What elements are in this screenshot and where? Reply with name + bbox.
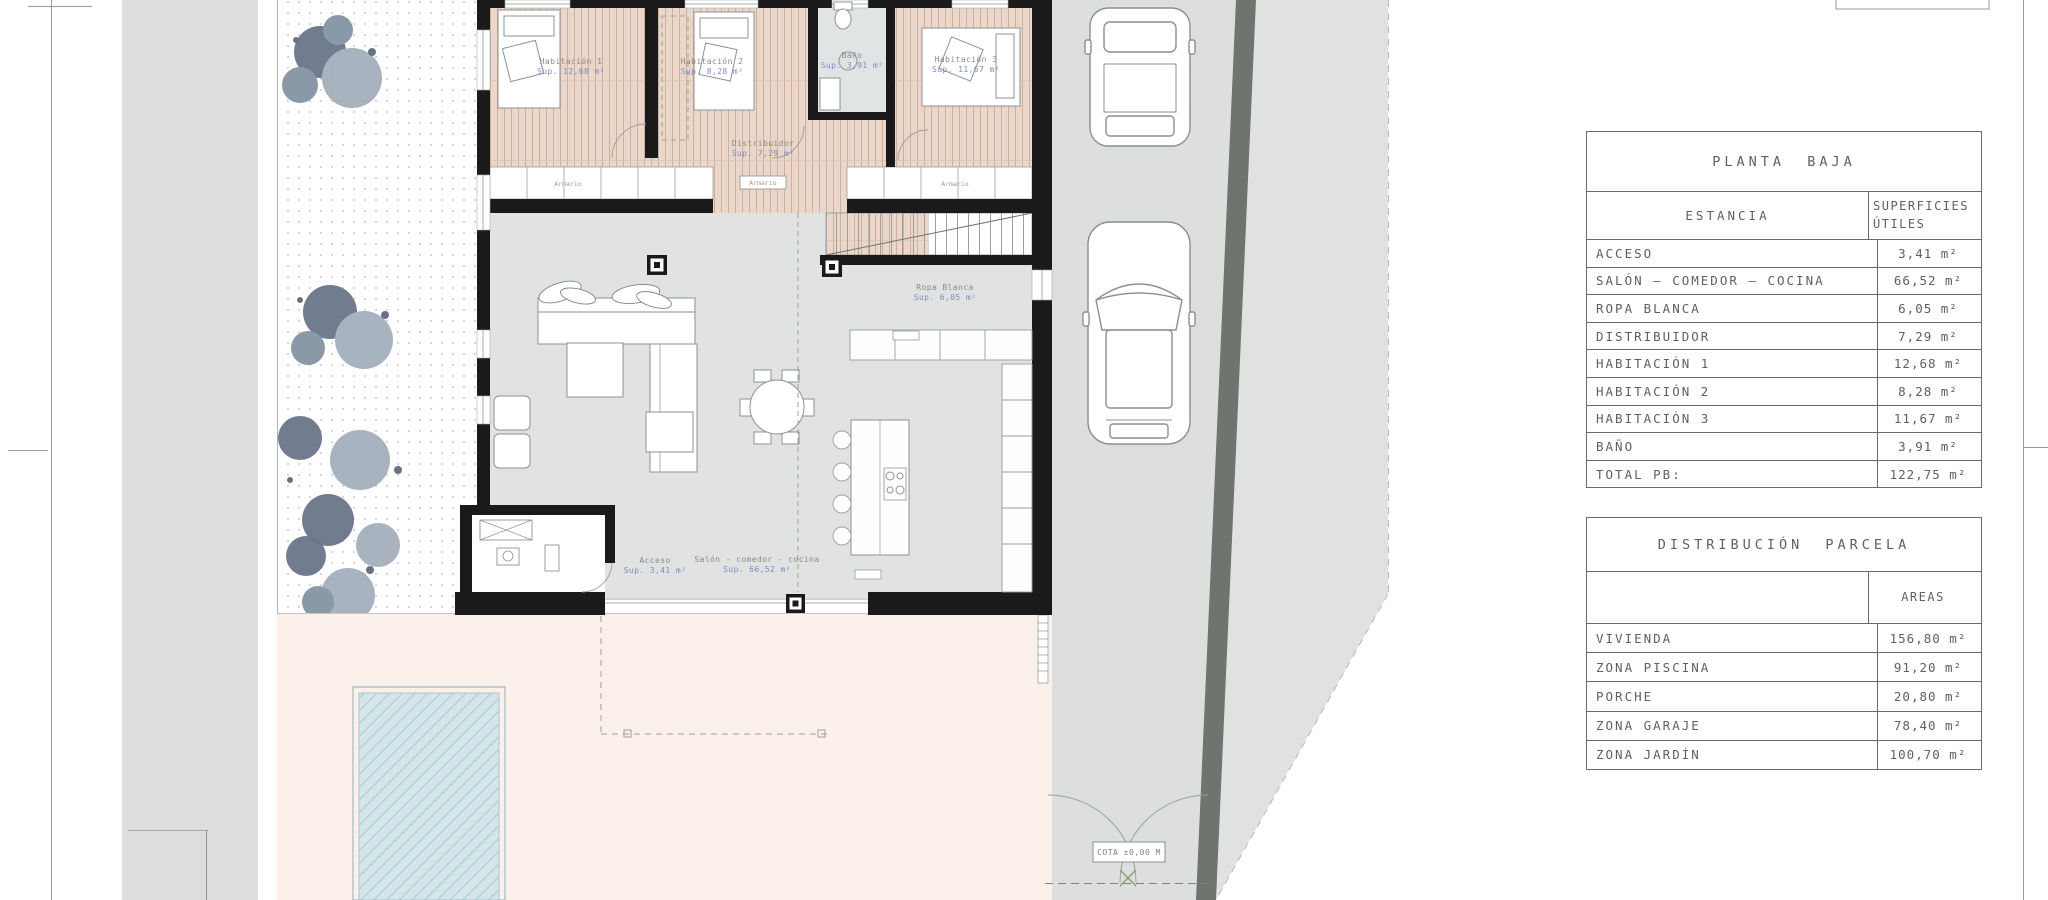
- row-value: 122,75 m²: [1878, 461, 1978, 488]
- table-row: VIVIENDA 156,80 m²: [1586, 624, 1982, 653]
- side-table: [646, 412, 693, 452]
- table-distribucion-title: DISTRIBUCIÓN PARCELA: [1586, 517, 1982, 572]
- table-distribucion-header: AREAS: [1586, 572, 1982, 624]
- row-value: 8,28 m²: [1878, 378, 1978, 405]
- col-estancia: ESTANCIA: [1587, 192, 1869, 239]
- table-row: ZONA GARAJE 78,40 m²: [1586, 712, 1982, 741]
- table-row: BAÑO 3,91 m²: [1586, 433, 1982, 461]
- table-distribucion-parcela: DISTRIBUCIÓN PARCELA AREAS VIVIENDA 156,…: [1586, 517, 1982, 770]
- row-value: 6,05 m²: [1878, 295, 1978, 322]
- architectural-sheet: COTA ±0,00 M: [0, 0, 2048, 900]
- armario-box-label: Armario: [740, 176, 786, 189]
- label-distribuidor-sup: Sup. 7,29 m²: [732, 149, 795, 158]
- label-distribuidor-name: Distribuidor: [732, 139, 795, 148]
- label-habitacion3-sup: Sup. 11,67 m²: [932, 65, 1000, 74]
- label-ropa-blanca-name: Ropa Blanca: [916, 283, 973, 292]
- label-habitacion2-name: Habitación 2: [681, 56, 744, 66]
- row-label: ROPA BLANCA: [1587, 295, 1878, 322]
- table-row: HABITACIÓN 3 11,67 m²: [1586, 406, 1982, 434]
- cota-label: COTA ±0,00 M: [1097, 848, 1161, 857]
- table-row: ZONA PISCINA 91,20 m²: [1586, 653, 1982, 682]
- coffee-table: [567, 343, 623, 397]
- cabinet-tag-1: [893, 331, 919, 340]
- armchair-2: [494, 434, 530, 468]
- label-acceso-sup: Sup. 3,41 m²: [624, 566, 687, 575]
- table-row: ACCESO 3,41 m²: [1586, 240, 1982, 268]
- table-row: DISTRIBUIDOR 7,29 m²: [1586, 323, 1982, 351]
- label-habitacion1-sup: Sup. 12,68 m²: [537, 67, 605, 76]
- label-acceso-name: Acceso: [639, 556, 670, 565]
- title-block-corner: [1836, 0, 1989, 9]
- car-bottom: [1083, 222, 1195, 444]
- car-top: [1085, 8, 1195, 146]
- row-value: 7,29 m²: [1878, 323, 1978, 350]
- row-value: 11,67 m²: [1878, 406, 1978, 433]
- label-ropa-blanca-sup: Sup. 6,05 m²: [914, 293, 977, 302]
- row-label: VIVIENDA: [1587, 624, 1878, 652]
- row-label: ZONA PISCINA: [1587, 653, 1878, 681]
- row-value: 20,80 m²: [1878, 682, 1978, 710]
- table-row-total: TOTAL PB: 122,75 m²: [1586, 461, 1982, 489]
- pool: [353, 687, 505, 900]
- row-value: 78,40 m²: [1878, 712, 1978, 740]
- row-value: 3,41 m²: [1878, 240, 1978, 267]
- row-label: ZONA GARAJE: [1587, 712, 1878, 740]
- row-label: HABITACIÓN 1: [1587, 350, 1878, 377]
- terrace-fence: [1038, 615, 1048, 683]
- cabinet-tag-2: [855, 570, 881, 579]
- armchair-1: [494, 396, 530, 430]
- table-planta-baja-title: PLANTA BAJA: [1586, 131, 1982, 192]
- row-value: 12,68 m²: [1878, 350, 1978, 377]
- armario-label-1: Armario: [554, 180, 581, 188]
- row-value: 66,52 m²: [1878, 268, 1978, 295]
- row-value: 91,20 m²: [1878, 653, 1978, 681]
- row-value: 156,80 m²: [1878, 624, 1978, 652]
- row-label: HABITACIÓN 2: [1587, 378, 1878, 405]
- row-label: HABITACIÓN 3: [1587, 406, 1878, 433]
- row-label: TOTAL PB:: [1587, 461, 1878, 488]
- table-planta-baja-header: ESTANCIA SUPERFICIES ÚTILES: [1586, 192, 1982, 240]
- table-row: HABITACIÓN 2 8,28 m²: [1586, 378, 1982, 406]
- armario-label-3: Armario: [749, 179, 776, 187]
- table-row: HABITACIÓN 1 12,68 m²: [1586, 350, 1982, 378]
- street-left: [122, 0, 258, 900]
- table-row: ZONA JARDÍN 100,70 m²: [1586, 741, 1982, 770]
- label-salon-name: Salón - comedor - cocina: [694, 554, 819, 564]
- row-value: 3,91 m²: [1878, 433, 1978, 460]
- table-row: PORCHE 20,80 m²: [1586, 682, 1982, 711]
- armario-label-2: Armario: [941, 180, 968, 188]
- col-empty: [1587, 572, 1869, 623]
- stairs: [826, 213, 1032, 255]
- col-areas: AREAS: [1869, 572, 1977, 623]
- label-bano-name: Baño: [842, 51, 863, 60]
- row-label: SALÓN — COMEDOR — COCINA: [1587, 268, 1878, 295]
- label-salon-sup: Sup. 66,52 m²: [723, 565, 791, 574]
- label-bano-sup: Sup. 3,91 m²: [821, 61, 884, 70]
- label-habitacion2-sup: Sup. 8,28 m²: [681, 67, 744, 76]
- laundry-room: [472, 515, 612, 592]
- label-habitacion1-name: Habitación 1: [540, 56, 603, 66]
- col-superficies: SUPERFICIES ÚTILES: [1869, 192, 1977, 239]
- kitchen-island: [851, 420, 909, 555]
- row-label: ZONA JARDÍN: [1587, 741, 1878, 769]
- row-label: DISTRIBUIDOR: [1587, 323, 1878, 350]
- table-planta-baja: PLANTA BAJA ESTANCIA SUPERFICIES ÚTILES …: [1586, 131, 1982, 488]
- row-label: ACCESO: [1587, 240, 1878, 267]
- row-value: 100,70 m²: [1878, 741, 1978, 769]
- row-label: PORCHE: [1587, 682, 1878, 710]
- table-row: SALÓN — COMEDOR — COCINA 66,52 m²: [1586, 268, 1982, 296]
- row-label: BAÑO: [1587, 433, 1878, 460]
- label-habitacion3-name: Habitación 3: [935, 54, 998, 64]
- table-row: ROPA BLANCA 6,05 m²: [1586, 295, 1982, 323]
